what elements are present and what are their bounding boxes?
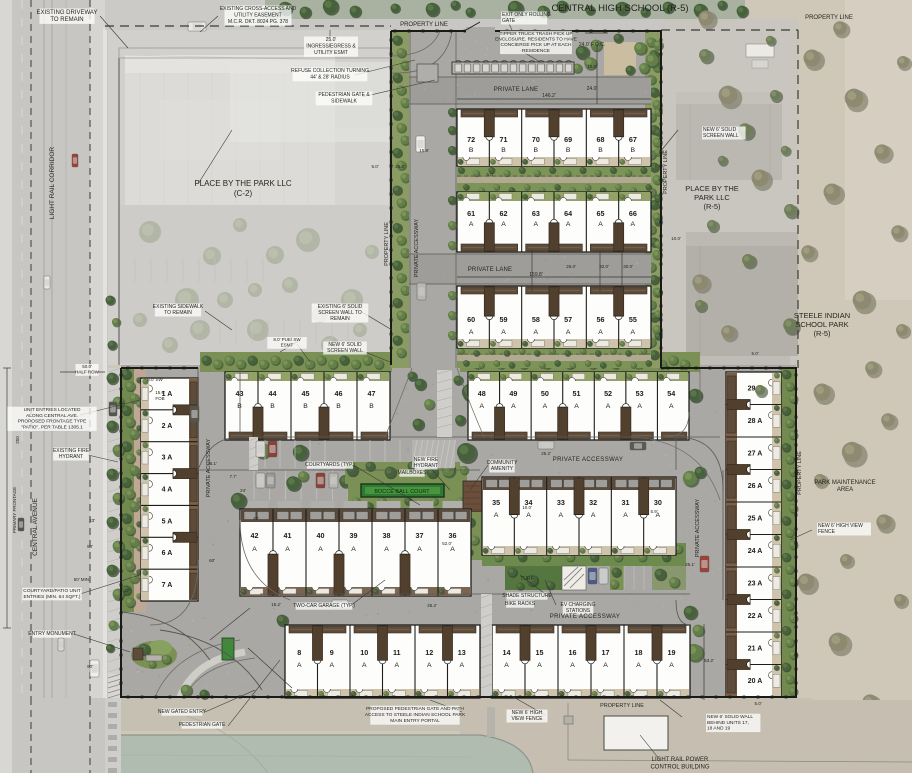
svg-text:A: A <box>598 221 603 228</box>
svg-text:40: 40 <box>317 531 325 540</box>
svg-text:27 A: 27 A <box>748 450 763 457</box>
svg-text:PARK MAINTENANCE: PARK MAINTENANCE <box>814 480 875 486</box>
svg-text:26 A: 26 A <box>748 483 763 490</box>
svg-text:24 A: 24 A <box>748 548 763 555</box>
svg-text:A: A <box>511 403 516 410</box>
svg-text:A: A <box>450 546 455 553</box>
svg-text:A: A <box>623 512 628 519</box>
svg-text:9: 9 <box>330 648 334 657</box>
svg-text:53: 53 <box>636 389 644 398</box>
svg-text:90': 90' <box>87 664 93 669</box>
svg-text:REFUSE COLLECTION TURNING: REFUSE COLLECTION TURNING <box>291 68 369 74</box>
svg-text:10: 10 <box>360 648 368 657</box>
svg-text:52: 52 <box>604 389 612 398</box>
svg-text:A: A <box>351 546 356 553</box>
svg-text:HYDRANT: HYDRANT <box>59 454 83 460</box>
svg-text:27': 27' <box>124 588 130 593</box>
svg-text:A: A <box>566 329 571 336</box>
svg-text:159.8': 159.8' <box>529 272 543 278</box>
svg-text:35: 35 <box>492 498 500 507</box>
svg-text:ALONG CENTRAL AVE.: ALONG CENTRAL AVE. <box>26 413 78 419</box>
svg-text:66: 66 <box>629 209 637 218</box>
svg-text:5 A: 5 A <box>162 518 173 525</box>
svg-text:47: 47 <box>368 389 376 398</box>
svg-text:24.0': 24.0' <box>587 86 598 92</box>
svg-text:PRIVATE ACCESSWAY: PRIVATE ACCESSWAY <box>695 498 701 557</box>
svg-text:19: 19 <box>668 648 676 657</box>
svg-text:8.0' PUE/ SW: 8.0' PUE/ SW <box>273 337 301 342</box>
svg-text:PROPOSED PEDESTRIAN GATE AND P: PROPOSED PEDESTRIAN GATE AND PATH <box>366 706 464 712</box>
svg-text:25.2': 25.2' <box>395 164 405 169</box>
svg-text:22 A: 22 A <box>748 613 763 620</box>
svg-text:5.0': 5.0' <box>486 172 493 177</box>
svg-text:36: 36 <box>449 531 457 540</box>
svg-text:SCREEN WALL: SCREEN WALL <box>703 133 739 139</box>
svg-text:TO REMAIN: TO REMAIN <box>50 17 83 23</box>
svg-text:FOB: FOB <box>155 396 164 401</box>
svg-text:COURTYARD/PATIO UNIT: COURTYARD/PATIO UNIT <box>23 588 81 594</box>
svg-text:TIPPER TRUCK TRASH PICK UP: TIPPER TRUCK TRASH PICK UP <box>499 31 572 37</box>
svg-text:25.0': 25.0' <box>326 37 337 43</box>
svg-text:A: A <box>669 403 674 410</box>
svg-text:B: B <box>336 403 341 410</box>
svg-text:50': 50' <box>87 544 93 549</box>
svg-text:PRIMARY FRONTAGE: PRIMARY FRONTAGE <box>12 487 17 533</box>
svg-text:64: 64 <box>564 209 572 218</box>
svg-text:PLACE BY THE PARK LLC: PLACE BY THE PARK LLC <box>194 179 292 188</box>
svg-text:A: A <box>631 221 636 228</box>
svg-text:38: 38 <box>383 531 391 540</box>
svg-text:VIEW FENCE: VIEW FENCE <box>511 716 543 722</box>
svg-text:24': 24' <box>240 488 246 493</box>
svg-text:A: A <box>570 662 575 669</box>
svg-text:20 A: 20 A <box>748 678 763 685</box>
svg-text:68: 68 <box>597 135 605 144</box>
svg-text:60': 60' <box>209 558 215 563</box>
svg-text:ENTRIES (MIN. 64 SQFT.): ENTRIES (MIN. 64 SQFT.) <box>23 594 80 600</box>
svg-text:SCREEN WALL: SCREEN WALL <box>327 348 363 354</box>
svg-text:16: 16 <box>569 648 577 657</box>
svg-text:25 A: 25 A <box>748 515 763 522</box>
svg-text:67: 67 <box>629 135 637 144</box>
svg-text:CENTRAL HIGH SCHOOL (R-5): CENTRAL HIGH SCHOOL (R-5) <box>551 3 688 14</box>
svg-text:72: 72 <box>467 135 475 144</box>
svg-text:PRIVATE ACCESSWAY: PRIVATE ACCESSWAY <box>206 438 212 497</box>
svg-text:22': 22' <box>253 516 259 521</box>
svg-text:PARK LLC: PARK LLC <box>694 193 730 202</box>
svg-text:SCHOOL PARK: SCHOOL PARK <box>795 320 848 329</box>
svg-text:49: 49 <box>509 389 517 398</box>
svg-text:PROPERTY LINE: PROPERTY LINE <box>600 703 644 709</box>
svg-text:CONTROL BUILDING: CONTROL BUILDING <box>650 764 709 770</box>
svg-text:A: A <box>504 662 509 669</box>
svg-text:32: 32 <box>589 498 597 507</box>
svg-text:PRIVATE ACCESSWAY: PRIVATE ACCESSWAY <box>414 218 420 277</box>
svg-text:MAILBOXES: MAILBOXES <box>398 470 428 476</box>
svg-text:A: A <box>501 221 506 228</box>
svg-text:63: 63 <box>532 209 540 218</box>
svg-text:PLACE BY THE: PLACE BY THE <box>685 184 739 193</box>
svg-text:LIGHT RAIL POWER: LIGHT RAIL POWER <box>652 757 709 763</box>
svg-text:A: A <box>417 546 422 553</box>
svg-text:59: 59 <box>500 315 508 324</box>
svg-text:50: 50 <box>541 389 549 398</box>
svg-text:A: A <box>591 512 596 519</box>
svg-text:17: 17 <box>602 648 610 657</box>
svg-text:A: A <box>427 662 432 669</box>
svg-text:ENTRY MONUMENT: ENTRY MONUMENT <box>28 631 76 637</box>
svg-text:18: 18 <box>635 648 643 657</box>
svg-text:51: 51 <box>573 389 581 398</box>
svg-text:PROPERTY LINE: PROPERTY LINE <box>400 22 448 28</box>
svg-text:(R-5): (R-5) <box>813 329 831 338</box>
svg-text:A: A <box>384 546 389 553</box>
svg-text:(R-5): (R-5) <box>703 202 721 211</box>
svg-text:PROPERTY LINE: PROPERTY LINE <box>663 150 669 194</box>
svg-text:45: 45 <box>302 389 310 398</box>
svg-text:5.0': 5.0' <box>754 701 761 706</box>
svg-text:A: A <box>637 403 642 410</box>
svg-text:B: B <box>631 147 636 154</box>
svg-text:PRIVATE LANE: PRIVATE LANE <box>494 87 539 93</box>
svg-text:8: 8 <box>297 648 301 657</box>
svg-text:INGRESS/EGRESS &: INGRESS/EGRESS & <box>306 43 356 49</box>
svg-text:25.2': 25.2' <box>541 451 551 456</box>
svg-text:RESIDENCE: RESIDENCE <box>522 48 550 54</box>
svg-text:39: 39 <box>350 531 358 540</box>
svg-text:PEDESTRIAN GATE &: PEDESTRIAN GATE & <box>318 92 370 98</box>
svg-text:CENTRAL AVENUE: CENTRAL AVENUE <box>32 497 39 555</box>
svg-text:B: B <box>469 147 474 154</box>
svg-text:A: A <box>537 662 542 669</box>
svg-text:44: 44 <box>269 389 277 398</box>
svg-text:23': 23' <box>89 518 95 523</box>
svg-text:42: 42 <box>251 531 259 540</box>
svg-text:33: 33 <box>557 498 565 507</box>
svg-text:HYDRANT: HYDRANT <box>414 463 438 469</box>
svg-text:TURF: TURF <box>520 576 533 582</box>
svg-text:B: B <box>369 403 374 410</box>
svg-text:7 A: 7 A <box>162 582 173 589</box>
svg-text:AMENITY: AMENITY <box>491 466 514 472</box>
svg-text:52.0': 52.0' <box>442 541 452 546</box>
svg-text:PROPERTY LINE: PROPERTY LINE <box>797 451 803 495</box>
svg-text:A: A <box>297 662 302 669</box>
svg-text:UTILITY ESMT: UTILITY ESMT <box>314 50 348 56</box>
svg-text:BOCCE BALL COURT: BOCCE BALL COURT <box>374 489 430 495</box>
svg-text:5.0': 5.0' <box>751 351 758 356</box>
svg-text:4 A: 4 A <box>162 487 173 494</box>
svg-text:A: A <box>459 662 464 669</box>
svg-text:B: B <box>303 403 308 410</box>
svg-text:50' MIN.: 50' MIN. <box>74 577 91 582</box>
svg-text:15: 15 <box>536 648 544 657</box>
svg-text:A: A <box>480 403 485 410</box>
svg-text:6 A: 6 A <box>162 550 173 557</box>
svg-text:A: A <box>469 221 474 228</box>
svg-text:A: A <box>534 329 539 336</box>
svg-text:62: 62 <box>500 209 508 218</box>
svg-text:NEW GATED ENTRY: NEW GATED ENTRY <box>158 709 207 715</box>
svg-text:58: 58 <box>532 315 540 324</box>
svg-text:BIKE RACKS: BIKE RACKS <box>505 601 536 607</box>
svg-text:28 A: 28 A <box>748 418 763 425</box>
svg-text:EXISTING CROSS-ACCESS AND: EXISTING CROSS-ACCESS AND <box>220 6 297 12</box>
svg-text:AREA: AREA <box>837 487 853 493</box>
svg-text:A: A <box>252 546 257 553</box>
svg-text:32.0': 32.0' <box>599 264 609 269</box>
svg-text:10.0': 10.0' <box>522 505 532 510</box>
svg-text:HALF ROW: HALF ROW <box>75 369 100 374</box>
svg-text:10.0': 10.0' <box>587 64 597 69</box>
svg-text:24.0' F.O.C.: 24.0' F.O.C. <box>579 42 605 48</box>
svg-text:PEDESTRIAN GATE: PEDESTRIAN GATE <box>179 722 226 728</box>
svg-text:3 A: 3 A <box>162 455 173 462</box>
svg-text:PROPOSED FRONTAGE TYPE: PROPOSED FRONTAGE TYPE <box>18 419 87 425</box>
svg-text:ACCESS TO STEELE INDIAN SCHOOL: ACCESS TO STEELE INDIAN SCHOOL PARK <box>365 712 466 718</box>
svg-text:5.0': 5.0' <box>371 164 378 169</box>
svg-text:15.6': 15.6' <box>155 390 165 395</box>
svg-text:21 A: 21 A <box>748 645 763 652</box>
svg-text:31: 31 <box>622 498 630 507</box>
svg-text:A: A <box>285 546 290 553</box>
svg-text:146.2': 146.2' <box>542 93 556 99</box>
svg-text:BEHIND UNITS 17,: BEHIND UNITS 17, <box>707 720 749 726</box>
svg-text:54: 54 <box>667 389 675 398</box>
svg-text:71: 71 <box>500 135 508 144</box>
svg-text:A: A <box>559 512 564 519</box>
svg-text:65: 65 <box>597 209 605 218</box>
svg-text:A: A <box>318 546 323 553</box>
svg-text:30: 30 <box>654 498 662 507</box>
svg-text:B: B <box>598 147 603 154</box>
svg-text:26.0': 26.0' <box>566 264 576 269</box>
svg-text:A: A <box>394 662 399 669</box>
svg-text:PRIVATE LANE: PRIVATE LANE <box>468 267 513 273</box>
svg-text:56: 56 <box>597 315 605 324</box>
svg-text:COURTYARDS (TYP.): COURTYARDS (TYP.) <box>305 462 355 468</box>
svg-text:44' & 28' RADIUS: 44' & 28' RADIUS <box>310 74 350 80</box>
svg-text:A: A <box>603 662 608 669</box>
svg-text:PRIVATE ACCESSWAY: PRIVATE ACCESSWAY <box>553 457 624 463</box>
svg-text:ESMT: ESMT <box>281 342 294 347</box>
svg-text:7.7': 7.7' <box>229 474 236 479</box>
svg-text:M.C.R. DKT. 8024 PG. 378: M.C.R. DKT. 8024 PG. 378 <box>228 19 288 25</box>
svg-text:TO REMAIN: TO REMAIN <box>164 310 192 316</box>
svg-text:B: B <box>270 403 275 410</box>
svg-text:STEELE INDIAN: STEELE INDIAN <box>794 311 850 320</box>
svg-text:SIDEWALK: SIDEWALK <box>331 98 357 104</box>
svg-text:2 A: 2 A <box>162 423 173 430</box>
svg-text:25.1': 25.1' <box>685 562 695 567</box>
svg-text:UNIT ENTRIES LOCATED: UNIT ENTRIES LOCATED <box>24 407 81 413</box>
svg-text:(C-2): (C-2) <box>234 189 253 198</box>
svg-text:NEW 6' SOLID WALL: NEW 6' SOLID WALL <box>707 714 753 720</box>
svg-text:UTILITY EASEMENT: UTILITY EASEMENT <box>234 12 281 18</box>
svg-text:A: A <box>543 403 548 410</box>
svg-text:B: B <box>501 147 506 154</box>
svg-text:55: 55 <box>629 315 637 324</box>
svg-text:61: 61 <box>467 209 475 218</box>
svg-text:70: 70 <box>532 135 540 144</box>
svg-text:50.0': 50.0' <box>82 364 92 369</box>
svg-text:30.0': 30.0' <box>623 264 633 269</box>
svg-text:69: 69 <box>564 135 572 144</box>
svg-text:A: A <box>574 403 579 410</box>
svg-text:"PATIO", PER TABLE 1305.1: "PATIO", PER TABLE 1305.1 <box>21 424 83 430</box>
svg-text:GATE: GATE <box>502 18 516 24</box>
svg-text:LIGHT RAIL CORRIDOR: LIGHT RAIL CORRIDOR <box>49 147 56 220</box>
svg-text:ENCLOSURE. RESIDENTS TO HAVE: ENCLOSURE. RESIDENTS TO HAVE <box>495 37 577 43</box>
svg-text:A: A <box>606 403 611 410</box>
svg-text:23 A: 23 A <box>748 580 763 587</box>
svg-text:TWO-CAR GARAGE (TYP.): TWO-CAR GARAGE (TYP.) <box>293 603 355 609</box>
svg-text:43: 43 <box>236 389 244 398</box>
svg-text:FENCE: FENCE <box>818 529 836 535</box>
svg-text:A: A <box>598 329 603 336</box>
svg-text:SHADE STRUCTURE: SHADE STRUCTURE <box>502 593 552 599</box>
svg-text:PROPERTY LINE: PROPERTY LINE <box>384 222 390 266</box>
svg-text:15.8': 15.8' <box>419 148 429 153</box>
svg-text:13: 13 <box>458 648 466 657</box>
svg-text:A: A <box>469 329 474 336</box>
svg-text:46: 46 <box>335 389 343 398</box>
svg-text:B: B <box>534 147 539 154</box>
svg-text:11: 11 <box>393 648 401 657</box>
svg-text:8.0' SW: 8.0' SW <box>147 377 163 382</box>
svg-text:A: A <box>501 329 506 336</box>
svg-text:PRIVATE ACCESSWAY: PRIVATE ACCESSWAY <box>550 614 621 620</box>
svg-text:CONCIERGE PICK UP AT EACH: CONCIERGE PICK UP AT EACH <box>501 42 572 48</box>
svg-text:25.2': 25.2' <box>427 603 437 608</box>
svg-text:A: A <box>329 662 334 669</box>
svg-text:15.2': 15.2' <box>271 602 281 607</box>
svg-text:A: A <box>631 329 636 336</box>
svg-text:A: A <box>566 221 571 228</box>
svg-text:A: A <box>534 221 539 228</box>
svg-text:41: 41 <box>284 531 292 540</box>
svg-text:MAIN ENTRY PORTAL: MAIN ENTRY PORTAL <box>390 718 440 724</box>
svg-text:14: 14 <box>503 648 511 657</box>
svg-text:REMAIN: REMAIN <box>330 316 350 322</box>
svg-text:PROPERTY LINE: PROPERTY LINE <box>805 15 853 21</box>
svg-text:A: A <box>494 512 499 519</box>
svg-text:A: A <box>526 512 531 519</box>
svg-text:25.1': 25.1' <box>207 461 217 466</box>
svg-text:A: A <box>669 662 674 669</box>
svg-text:57: 57 <box>564 315 572 324</box>
svg-text:60: 60 <box>467 315 475 324</box>
svg-text:A: A <box>636 662 641 669</box>
svg-text:EXISTING DRIVEWAY: EXISTING DRIVEWAY <box>36 10 97 16</box>
svg-text:B: B <box>566 147 571 154</box>
svg-text:A: A <box>362 662 367 669</box>
svg-text:12: 12 <box>425 648 433 657</box>
svg-text:53.2': 53.2' <box>704 658 714 663</box>
svg-text:10.0': 10.0' <box>671 236 681 241</box>
svg-text:48: 48 <box>478 389 486 398</box>
svg-text:18 AND 19: 18 AND 19 <box>707 726 731 732</box>
svg-text:37: 37 <box>416 531 424 540</box>
svg-text:250: 250 <box>15 436 20 444</box>
svg-text:5.9': 5.9' <box>650 509 657 514</box>
